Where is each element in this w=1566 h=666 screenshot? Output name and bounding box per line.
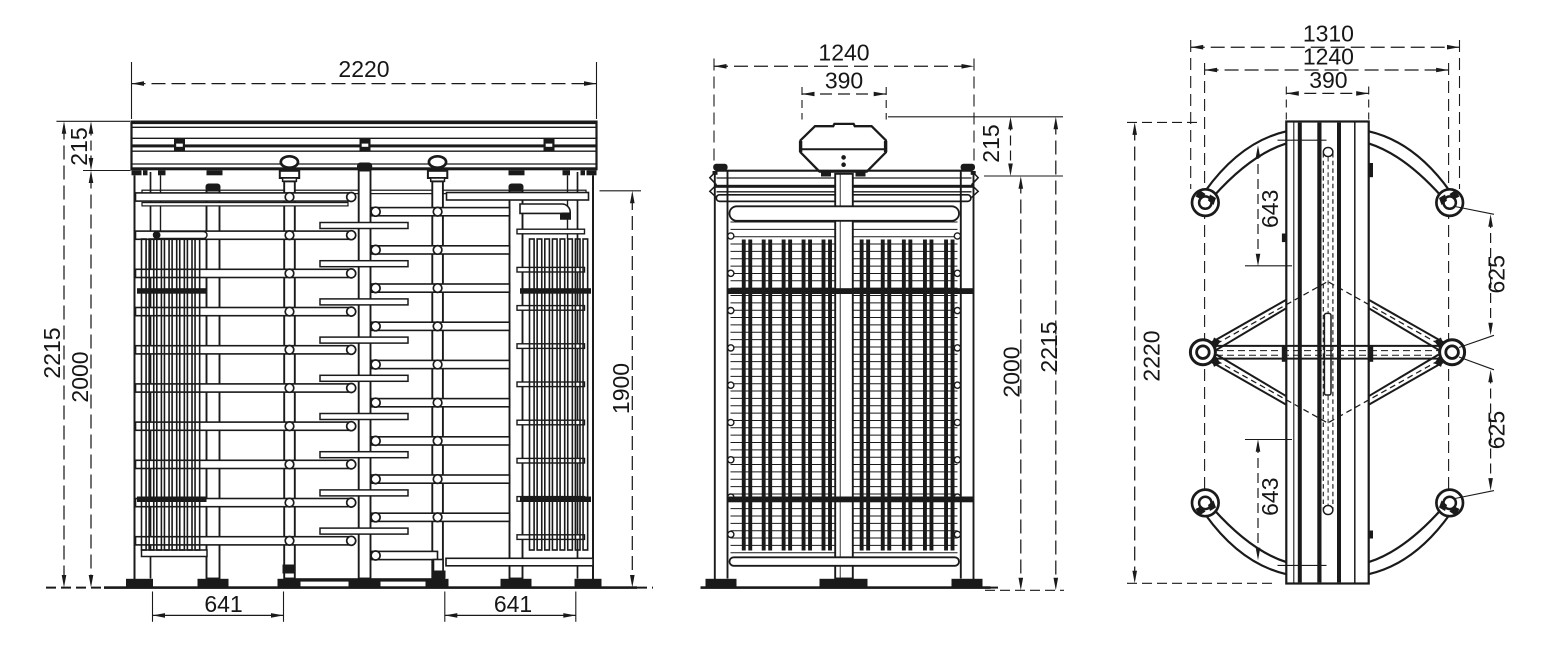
svg-text:215: 215 xyxy=(978,124,1004,162)
svg-text:625: 625 xyxy=(1484,411,1510,449)
svg-text:643: 643 xyxy=(1257,190,1283,228)
svg-text:2220: 2220 xyxy=(1139,330,1165,381)
svg-text:390: 390 xyxy=(1309,67,1347,93)
svg-text:643: 643 xyxy=(1257,478,1283,516)
svg-text:641: 641 xyxy=(494,591,532,617)
svg-text:641: 641 xyxy=(204,591,242,617)
svg-text:1240: 1240 xyxy=(818,39,869,65)
svg-text:2215: 2215 xyxy=(39,327,65,378)
svg-text:2000: 2000 xyxy=(999,346,1025,397)
svg-text:1900: 1900 xyxy=(608,363,634,414)
svg-text:2215: 2215 xyxy=(1036,321,1062,372)
svg-text:1240: 1240 xyxy=(1303,44,1354,70)
svg-text:215: 215 xyxy=(66,127,92,165)
svg-text:390: 390 xyxy=(825,67,863,93)
svg-text:1310: 1310 xyxy=(1303,20,1354,46)
svg-text:625: 625 xyxy=(1484,255,1510,293)
svg-text:2220: 2220 xyxy=(338,56,389,82)
svg-text:2000: 2000 xyxy=(67,351,93,402)
